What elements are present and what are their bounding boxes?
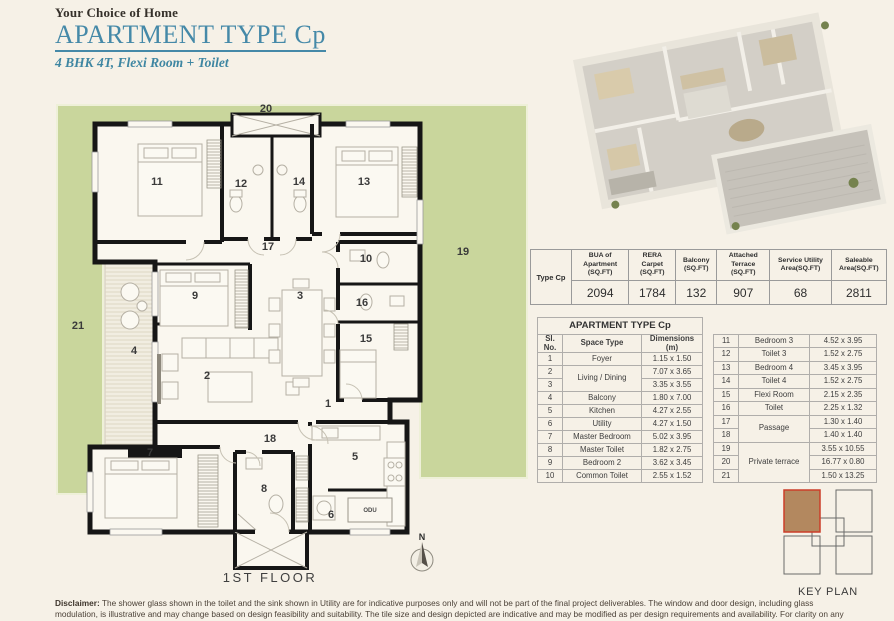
table-row: 7Master Bedroom5.02 x 3.95 <box>538 431 703 444</box>
area-col-header: Attached Terrace (SQ.FT) <box>717 250 770 281</box>
table-row: 5Kitchen4.27 x 2.55 <box>538 405 703 418</box>
svg-text:ODU: ODU <box>363 508 376 514</box>
floor-plan-drawing: ODU 202119111214131710 <box>50 92 530 602</box>
brand-tagline: Your Choice of Home <box>55 5 326 21</box>
room-number-label: 18 <box>264 433 276 445</box>
room-number-label: 13 <box>358 176 370 188</box>
table-row: 8Master Toilet1.82 x 2.75 <box>538 444 703 457</box>
key-plan-highlight <box>784 490 820 532</box>
stair-shaft-top <box>232 114 320 136</box>
room-number-label: 6 <box>328 509 334 521</box>
table-row: 17Passage1.30 x 1.40 <box>714 415 877 428</box>
header: Your Choice of Home APARTMENT TYPE Cp 4 … <box>55 5 326 71</box>
disclaimer-label: Disclaimer: <box>55 598 100 608</box>
room-number-label: 11 <box>151 176 163 188</box>
area-value: 1784 <box>629 281 676 305</box>
area-type-label: Type Cp <box>531 250 572 305</box>
table-row: 14Toilet 41.52 x 2.75 <box>714 375 877 388</box>
area-value: 68 <box>770 281 831 305</box>
area-value: 2811 <box>831 281 886 305</box>
col-header-dim: Dimensions (m) <box>642 335 703 353</box>
room-number-label: 2 <box>204 370 210 382</box>
floor-label: 1ST FLOOR <box>223 570 318 585</box>
key-plan-label: KEY PLAN <box>766 586 890 598</box>
space-table-right: 11Bedroom 34.52 x 3.95 12Toilet 31.52 x … <box>713 334 877 483</box>
col-header-space: Space Type <box>563 335 642 353</box>
render-3d-view <box>540 8 892 242</box>
space-table-title: APARTMENT TYPE Cp <box>538 318 703 335</box>
room-number-label: 4 <box>131 345 138 357</box>
brochure-page: Your Choice of Home APARTMENT TYPE Cp 4 … <box>0 0 894 621</box>
disclaimer-text: Disclaimer: The shower glass shown in th… <box>55 598 847 621</box>
hatch-lines <box>207 143 221 185</box>
area-value: 907 <box>717 281 770 305</box>
table-row: 9Bedroom 23.62 x 3.45 <box>538 457 703 470</box>
room-number-label: 1 <box>325 398 331 410</box>
space-type-tables: APARTMENT TYPE Cp Sl. No. Space Type Dim… <box>537 317 877 483</box>
table-row: 16Toilet2.25 x 1.32 <box>714 402 877 415</box>
room-number-label: 20 <box>260 103 272 115</box>
room-number-label: 3 <box>297 290 303 302</box>
area-col-header: Balcony (SQ.FT) <box>676 250 717 281</box>
room-number-label: 16 <box>356 297 368 309</box>
area-col-header: RERA Carpet (SQ.FT) <box>629 250 676 281</box>
page-subtitle: 4 BHK 4T, Flexi Room + Toilet <box>55 55 326 71</box>
table-row: 19Private terrace3.55 x 10.55 <box>714 442 877 455</box>
table-row: 1Foyer1.15 x 1.50 <box>538 353 703 366</box>
table-row: 10Common Toilet2.55 x 1.52 <box>538 470 703 483</box>
hatch-lines <box>296 459 308 477</box>
key-plan: KEY PLAN <box>766 486 890 598</box>
table-row: 11Bedroom 34.52 x 3.95 <box>714 335 877 348</box>
room-number-label: 12 <box>235 178 247 190</box>
table-row: 4Balcony1.80 x 7.00 <box>538 392 703 405</box>
svg-text:N: N <box>419 532 426 542</box>
room-number-label: 15 <box>360 333 372 345</box>
area-col-header: Service Utility Area(SQ.FT) <box>770 250 831 281</box>
room-number-label: 10 <box>360 253 372 265</box>
space-table-left: APARTMENT TYPE Cp Sl. No. Space Type Dim… <box>537 317 703 483</box>
north-compass-icon: N <box>411 532 433 571</box>
table-row: 13Bedroom 43.45 x 3.95 <box>714 361 877 374</box>
room-number-label: 17 <box>262 241 274 253</box>
room-number-label: 8 <box>261 483 267 495</box>
entrance-stair <box>235 528 307 568</box>
area-col-header: BUA of Apartment (SQ.FT) <box>572 250 629 281</box>
table-row: 15Flexi Room2.15 x 2.35 <box>714 388 877 401</box>
area-col-header: Saleable Area(SQ.FT) <box>831 250 886 281</box>
room-number-label: 9 <box>192 290 198 302</box>
area-value: 2094 <box>572 281 629 305</box>
room-number-label: 14 <box>293 176 306 188</box>
room-number-label: 7 <box>147 447 153 459</box>
room-number-label: 5 <box>352 451 358 463</box>
room-number-label: 19 <box>457 246 469 258</box>
table-row: 12Toilet 31.52 x 2.75 <box>714 348 877 361</box>
room-number-label: 21 <box>72 320 84 332</box>
page-title: APARTMENT TYPE Cp <box>55 21 326 52</box>
col-header-sl: Sl. No. <box>538 335 563 353</box>
table-row: 6Utility4.27 x 1.50 <box>538 418 703 431</box>
key-plan-drawing <box>768 486 888 580</box>
area-summary-table: Type Cp BUA of Apartment (SQ.FT) RERA Ca… <box>530 249 887 305</box>
area-value: 132 <box>676 281 717 305</box>
odu-box: ODU <box>348 498 392 522</box>
table-row: 2Living / Dining7.07 x 3.65 <box>538 366 703 379</box>
